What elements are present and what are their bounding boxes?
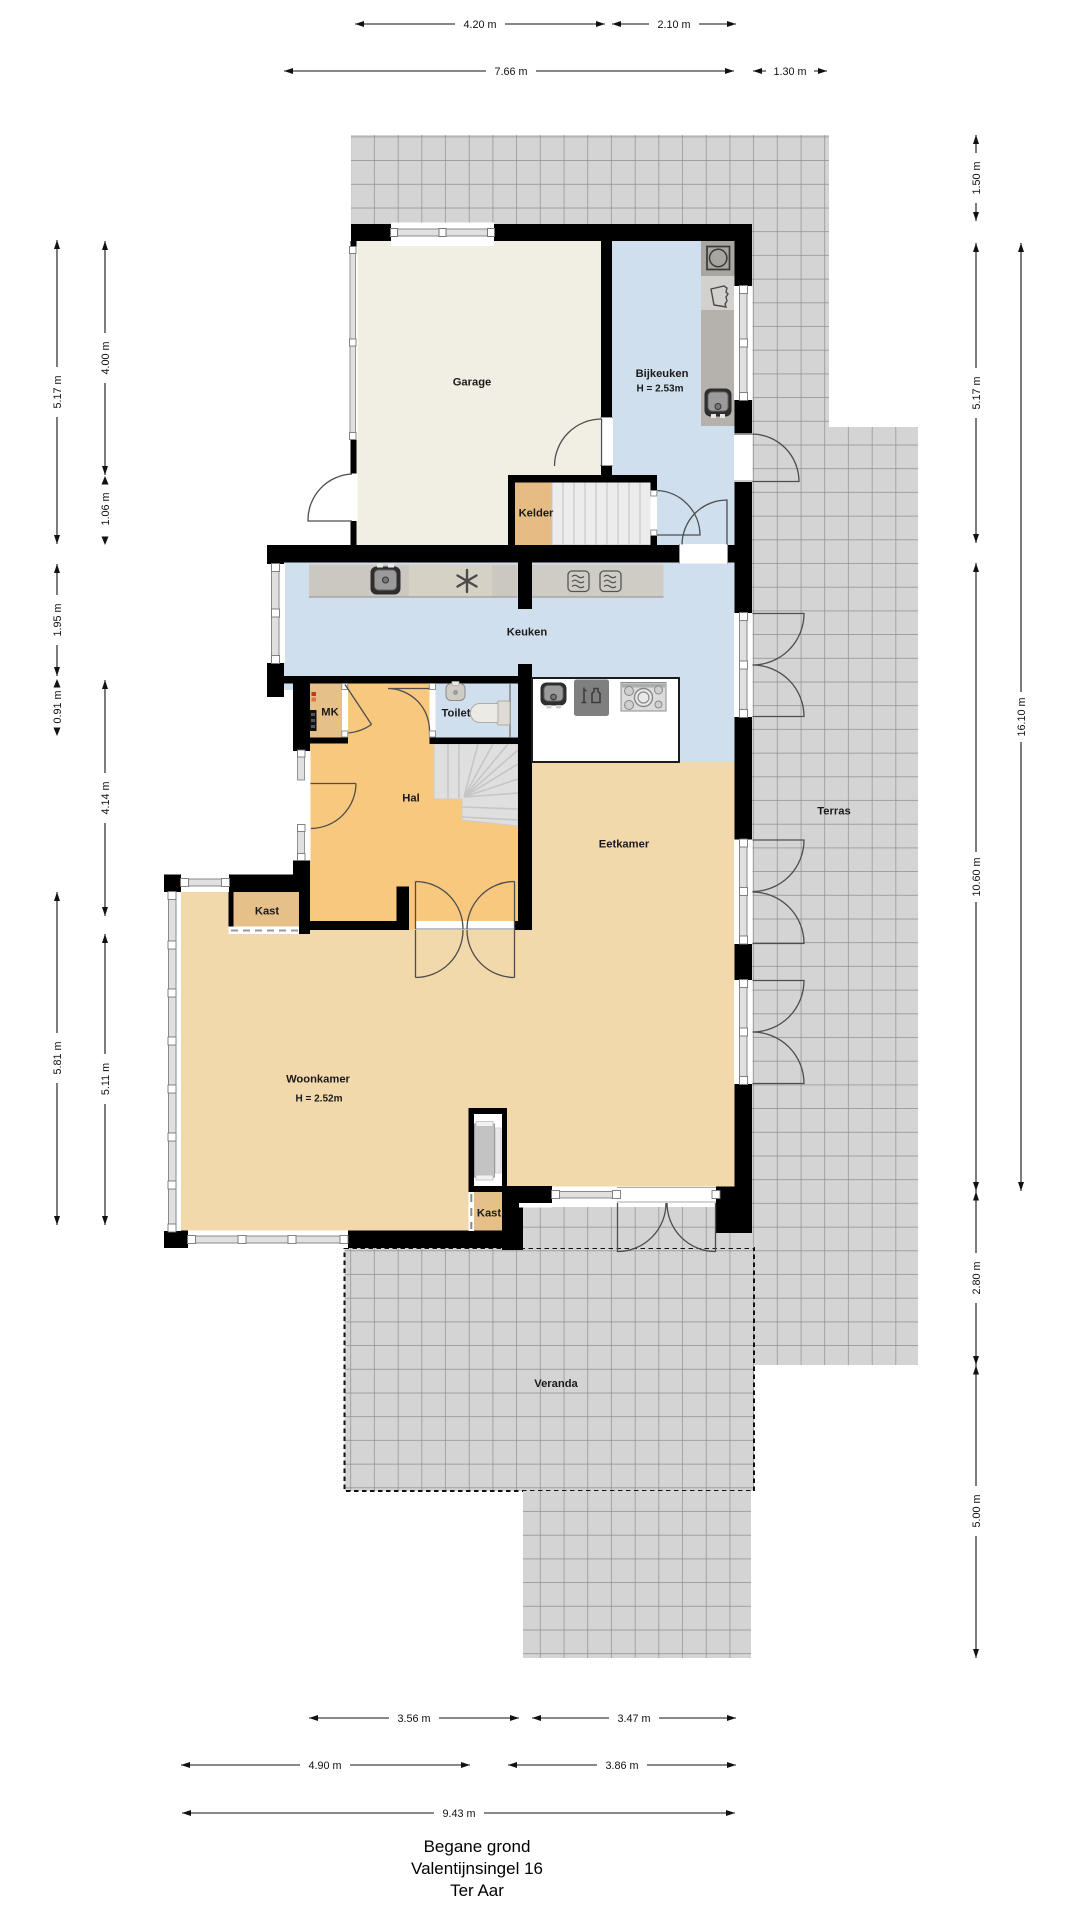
svg-text:Veranda: Veranda [534,1378,578,1390]
svg-text:4.90 m: 4.90 m [308,1760,341,1772]
svg-text:3.47 m: 3.47 m [617,1713,650,1725]
svg-text:Kelder: Kelder [519,508,554,520]
svg-text:4.20 m: 4.20 m [463,19,496,31]
svg-text:Terras: Terras [817,806,850,818]
svg-text:5.17 m: 5.17 m [52,375,64,408]
svg-text:Begane grond: Begane grond [424,1837,531,1856]
svg-text:H = 2.52m: H = 2.52m [296,1094,343,1105]
svg-text:2.10 m: 2.10 m [657,19,690,31]
svg-text:5.11 m: 5.11 m [100,1063,112,1095]
svg-text:3.56 m: 3.56 m [397,1713,430,1725]
svg-text:Keuken: Keuken [507,627,548,639]
svg-text:Eetkamer: Eetkamer [599,839,650,851]
svg-text:Garage: Garage [453,377,492,389]
svg-text:H = 2.53m: H = 2.53m [637,384,684,395]
svg-text:16.10 m: 16.10 m [1016,697,1028,736]
svg-text:0.91 m: 0.91 m [52,690,64,723]
svg-text:5.00 m: 5.00 m [971,1494,983,1527]
svg-text:4.00 m: 4.00 m [100,341,112,374]
svg-text:Woonkamer: Woonkamer [286,1074,350,1086]
svg-text:5.17 m: 5.17 m [971,376,983,409]
svg-text:MK: MK [321,707,338,719]
svg-text:1.95 m: 1.95 m [52,603,64,636]
svg-text:Valentijnsingel 16: Valentijnsingel 16 [411,1859,543,1878]
svg-text:1.50 m: 1.50 m [971,161,983,194]
svg-text:1.06 m: 1.06 m [100,492,112,525]
svg-text:3.86 m: 3.86 m [605,1760,638,1772]
svg-text:Hal: Hal [402,793,419,805]
svg-text:Ter Aar: Ter Aar [450,1881,504,1900]
svg-text:7.66 m: 7.66 m [494,66,527,78]
svg-text:5.81 m: 5.81 m [52,1041,64,1074]
svg-text:Kast: Kast [477,1208,502,1220]
svg-text:Toilet: Toilet [441,708,470,720]
svg-text:2.80 m: 2.80 m [971,1261,983,1294]
svg-text:4.14 m: 4.14 m [100,781,112,814]
svg-text:1.30 m: 1.30 m [773,66,806,78]
svg-text:Kast: Kast [255,906,280,918]
svg-text:9.43 m: 9.43 m [442,1808,475,1820]
svg-text:10.60 m: 10.60 m [971,857,983,896]
svg-text:Bijkeuken: Bijkeuken [636,368,689,380]
